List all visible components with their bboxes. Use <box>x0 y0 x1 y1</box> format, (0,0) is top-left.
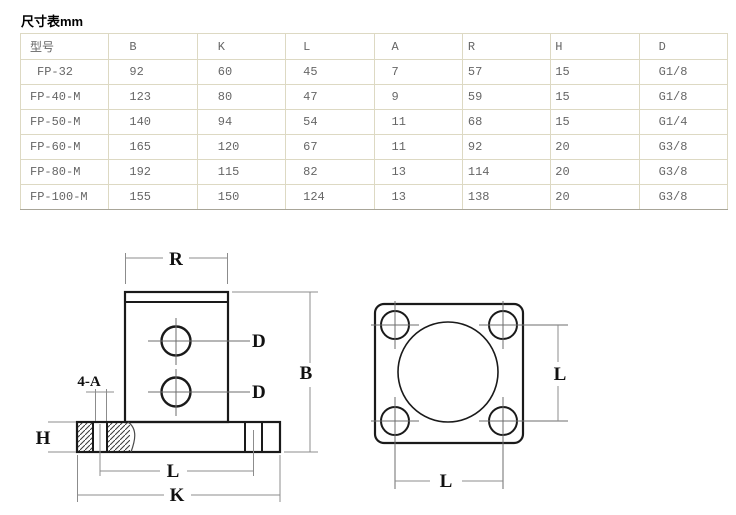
table-cell: 82 <box>286 160 374 185</box>
table-cell: 165 <box>109 135 197 160</box>
table-cell: 20 <box>551 160 639 185</box>
table-cell: 67 <box>286 135 374 160</box>
table-cell: 192 <box>109 160 197 185</box>
column-header: H <box>551 34 639 60</box>
table-row: FP-60-M16512067119220G3/8 <box>21 135 728 160</box>
table-cell: 7 <box>374 60 462 85</box>
dim-label-port-upper: D <box>252 331 266 352</box>
table-cell: 15 <box>551 110 639 135</box>
table-cell: 138 <box>462 185 550 210</box>
dim-label-L-vertical: L <box>554 364 567 385</box>
table-cell: FP-32 <box>21 60 109 85</box>
table-cell: G1/8 <box>639 85 727 110</box>
table-cell: 15 <box>551 85 639 110</box>
table-cell: 54 <box>286 110 374 135</box>
table-row: FP-3292604575715G1/8 <box>21 60 728 85</box>
table-row: FP-50-M1409454116815G1/4 <box>21 110 728 135</box>
page: { "page": { "title": "尺寸表mm" }, "table":… <box>0 0 736 515</box>
table-cell: 123 <box>109 85 197 110</box>
table-cell: G1/8 <box>639 60 727 85</box>
column-header: B <box>109 34 197 60</box>
table-cell: 120 <box>197 135 285 160</box>
table-cell: 60 <box>197 60 285 85</box>
table-cell: 124 <box>286 185 374 210</box>
table-cell: 68 <box>462 110 550 135</box>
bolt-hole-centerlines <box>371 301 568 489</box>
page-title: 尺寸表mm <box>21 11 83 30</box>
dim-4A <box>86 389 114 421</box>
hatch-section-right <box>108 423 130 451</box>
table-cell: G3/8 <box>639 160 727 185</box>
table-cell: 80 <box>197 85 285 110</box>
top-view: L L <box>371 301 568 492</box>
table-row: FP-100-M1551501241313820G3/8 <box>21 185 728 210</box>
column-header: L <box>286 34 374 60</box>
table-body: FP-3292604575715G1/8FP-40-M123804795915G… <box>21 60 728 210</box>
hatch-section-left <box>78 423 92 451</box>
table-cell: 114 <box>462 160 550 185</box>
table-cell: FP-100-M <box>21 185 109 210</box>
table-cell: G3/8 <box>639 185 727 210</box>
table-cell: 94 <box>197 110 285 135</box>
table-cell: 45 <box>286 60 374 85</box>
table-cell: 9 <box>374 85 462 110</box>
table-head: 型号BKLARHD <box>21 34 728 60</box>
table-cell: 11 <box>374 135 462 160</box>
dim-label-H: H <box>36 428 51 449</box>
table-row: FP-80-M192115821311420G3/8 <box>21 160 728 185</box>
dim-label-B: B <box>300 363 313 384</box>
table-cell: G3/8 <box>639 135 727 160</box>
table-cell: 20 <box>551 185 639 210</box>
table-cell: G1/4 <box>639 110 727 135</box>
dim-label-L-horizontal: L <box>440 471 453 492</box>
dim-label-port-lower: D <box>252 382 266 403</box>
table-cell: 59 <box>462 85 550 110</box>
table-cell: FP-60-M <box>21 135 109 160</box>
dim-label-L-front: L <box>167 461 180 482</box>
dimension-table: 型号BKLARHD FP-3292604575715G1/8FP-40-M123… <box>20 33 728 210</box>
table-cell: 140 <box>109 110 197 135</box>
dim-H <box>48 422 76 452</box>
dim-label-R: R <box>169 249 183 270</box>
table-cell: FP-50-M <box>21 110 109 135</box>
table-cell: 47 <box>286 85 374 110</box>
table-header-row: 型号BKLARHD <box>21 34 728 60</box>
table-cell: 57 <box>462 60 550 85</box>
column-header: A <box>374 34 462 60</box>
table-cell: 155 <box>109 185 197 210</box>
table-cell: FP-80-M <box>21 160 109 185</box>
table-cell: 15 <box>551 60 639 85</box>
table-cell: 150 <box>197 185 285 210</box>
column-header: R <box>462 34 550 60</box>
table-cell: 115 <box>197 160 285 185</box>
table-row: FP-40-M123804795915G1/8 <box>21 85 728 110</box>
technical-drawing: D D R B 4-A H <box>0 225 736 515</box>
front-view: D D R B 4-A H <box>36 249 318 506</box>
table-cell: 13 <box>374 185 462 210</box>
column-header: K <box>197 34 285 60</box>
dim-label-4A: 4-A <box>77 374 100 390</box>
dim-label-K: K <box>170 485 185 506</box>
table-cell: 92 <box>462 135 550 160</box>
column-header: D <box>639 34 727 60</box>
table-cell: 92 <box>109 60 197 85</box>
bore-circle <box>398 322 498 422</box>
table-cell: FP-40-M <box>21 85 109 110</box>
column-header: 型号 <box>21 34 109 60</box>
table-cell: 20 <box>551 135 639 160</box>
table-cell: 11 <box>374 110 462 135</box>
table-cell: 13 <box>374 160 462 185</box>
